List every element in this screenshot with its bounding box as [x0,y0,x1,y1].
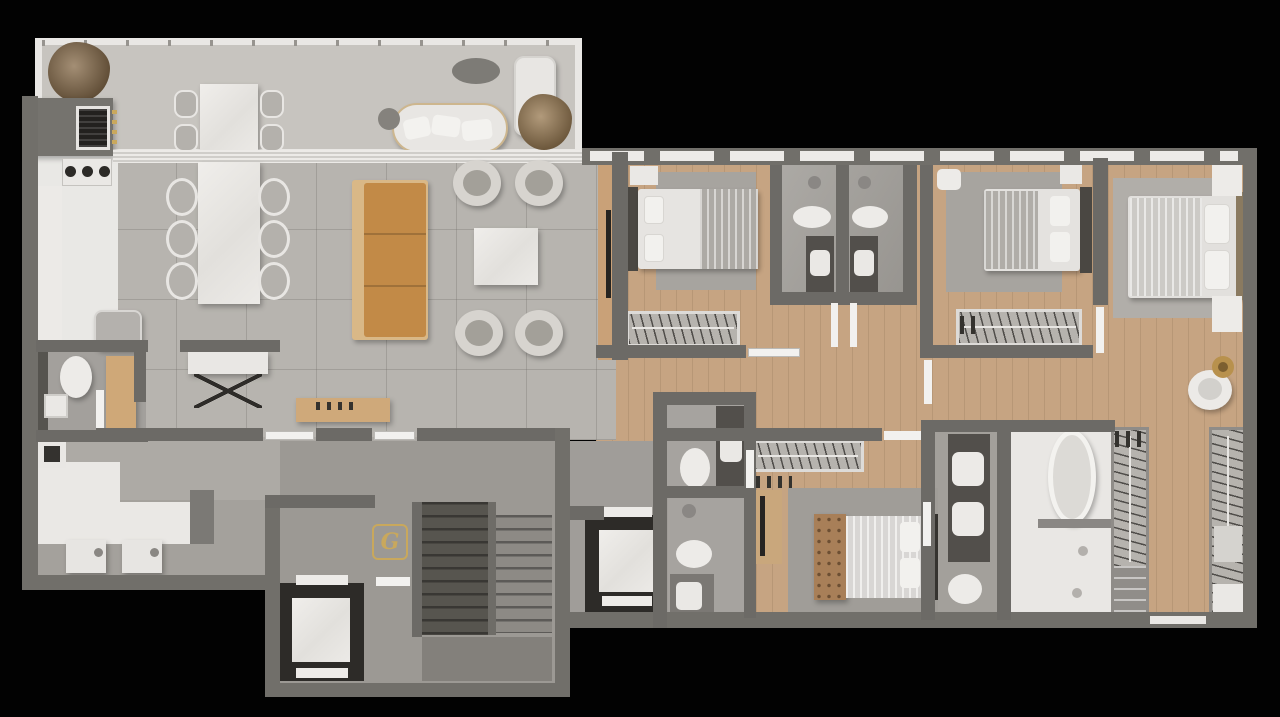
balcony-chair [260,124,284,152]
bedroom-4-headboard [814,514,846,600]
stairs-landing [422,637,552,681]
master-duvet [1130,198,1202,296]
powder-bench [106,356,136,430]
bathtub [1048,430,1096,524]
wardrobe-dresser [1114,566,1146,612]
door-sill [1150,616,1206,624]
bath-4-shower-head [682,504,696,518]
washer-knob [94,548,103,557]
dining-chair [258,178,290,216]
armchair-cushion [525,170,553,196]
armchair-cushion [465,320,493,346]
bedroom-2-headboard [1080,187,1092,273]
wall-below-bath12 [770,292,917,305]
bedroom-1-pillow [644,234,664,262]
wall-bath4-left [653,486,667,628]
master-pillow [1204,250,1230,290]
bedroom-2-nightstand [1060,164,1082,184]
shower-drain [1072,588,1082,598]
bedroom-2-stool [937,169,961,190]
dining-chair [166,220,198,258]
wall-bedroom4-top [660,428,882,441]
bedroom-1-blanket [700,189,758,269]
elevator-sill [602,596,652,606]
washer-small-door [44,446,60,462]
bath-5-toilet [948,574,982,604]
bedroom-4-pillow [900,522,920,552]
bath-4-sink [676,582,702,610]
wall-bath3-top [653,392,755,405]
wall-powder-top [36,340,148,352]
wall-bath34-mid [655,486,755,498]
balcony-chair [260,90,284,118]
wardrobe-items [1115,431,1143,447]
sink [810,250,830,276]
armchair-cushion [525,320,553,346]
wall-stair-left [265,497,280,697]
wall-bath34-right [744,392,756,618]
wall-bath12-mid [836,165,849,298]
wall-living-bedroom1 [612,152,628,360]
wall-hall-a [96,428,263,441]
closet-bottles [960,316,976,334]
bath-4-toilet [676,540,712,568]
grill-knobs [112,110,117,148]
balcony-coffee-table [452,58,500,84]
elevator-sill [296,575,348,585]
shower-head [808,176,821,189]
door [96,390,104,432]
master-pillow [1204,204,1230,244]
dining-chair [258,262,290,300]
wall-hall-c [417,428,570,441]
balcony-sofa-pillow [431,114,462,138]
powder-sink [44,394,68,418]
dining-chair [258,220,290,258]
wall-bath3-left [653,392,667,496]
tv [760,496,765,556]
wall-right [1243,148,1257,628]
entry-console-top [188,352,268,374]
closet-rail [962,326,1076,328]
closet-rack [626,311,740,347]
balcony-side-table [378,108,400,130]
wall-below-bedroom2 [933,345,1093,358]
wall-below-bedroom1 [596,345,746,358]
bath-5-sink [952,452,984,486]
wardrobe-box [1213,584,1243,612]
wall-stair-top [265,495,375,508]
entry-console-x-legs [194,374,262,408]
balcony-chair [174,90,198,118]
closet-rail [632,327,734,329]
sideboard-items [316,402,360,410]
bath-5-sink [952,502,984,536]
floor-plan-canvas: G [0,0,1280,717]
bedroom-4-pillow [900,558,920,588]
window-band [590,151,1238,161]
wall-powder-right [134,348,146,402]
glass-wall [113,150,582,163]
door [850,303,857,347]
wall-bottom-left [22,575,268,590]
dining-chair [166,262,198,300]
master-nightstand [1212,162,1242,196]
door [1096,307,1104,353]
wall-stair-bottom [265,683,570,697]
balcony-sofa-pillow [461,118,493,141]
stairs-flight-up [496,515,552,633]
burner [82,166,93,177]
dining-table [198,162,260,304]
toilet [793,206,831,228]
master-nightstand [1212,296,1242,332]
wall-stair-right [555,428,570,697]
stairs-divider [488,502,496,635]
floor-lamp-center [1218,362,1228,372]
bedroom-2-duvet [984,191,1038,269]
door [374,431,415,440]
wall-service [190,490,214,544]
bath-3-toilet [680,448,710,488]
bedroom-1-pillow [644,196,664,224]
coffee-table [474,228,538,285]
bedroom-1-nightstand [630,166,658,185]
wall-entry [180,340,280,352]
elevator-sill [296,668,348,678]
wall-bath12-left [770,165,782,298]
balcony-rail-ticks [42,40,575,46]
wall-bedroom2-left [920,165,933,358]
wall-masterbath-top [997,420,1115,432]
elevator-cab [292,598,350,662]
wall-bath12-right [903,165,917,298]
wardrobe-rail [1129,436,1131,562]
wardrobe-item [1214,526,1242,562]
brand-logo: G [372,524,408,560]
entry-door-sill [376,577,410,586]
door [748,348,800,357]
bedroom-2-pillow [1050,196,1070,226]
shower-drain [1078,546,1088,556]
door [923,502,931,546]
bedroom-2-pillow [1050,232,1070,262]
wall-masterbath-left [997,420,1011,620]
door [265,431,314,440]
shower-head [858,176,871,189]
dining-chair [166,178,198,216]
armchair-cushion [463,170,491,196]
burner [65,166,76,177]
master-bath-bench [1038,519,1114,528]
door [924,360,932,404]
wall-hall-b [316,428,372,441]
powder-toilet [60,356,92,398]
balcony-table [200,84,258,156]
tv [606,210,611,298]
closet-shoes [756,476,792,488]
balcony-chair [174,124,198,152]
wall-master-left [1093,158,1108,305]
elevator-sill [602,507,652,517]
toilet [852,206,888,228]
master-armchair-cushion [1198,378,1222,400]
stairs-flight-down [422,502,488,635]
elevator-cab [599,530,655,592]
door [746,450,754,488]
service-counter-2 [28,502,190,544]
kitchen-counter [36,186,62,340]
sink [854,250,874,276]
closet-rail [758,455,858,457]
door [831,303,838,347]
burner [99,166,110,177]
washer-knob [150,548,159,557]
sofa-cushions [364,183,426,337]
grill [76,106,110,150]
wall-stair-jamb [412,502,422,637]
